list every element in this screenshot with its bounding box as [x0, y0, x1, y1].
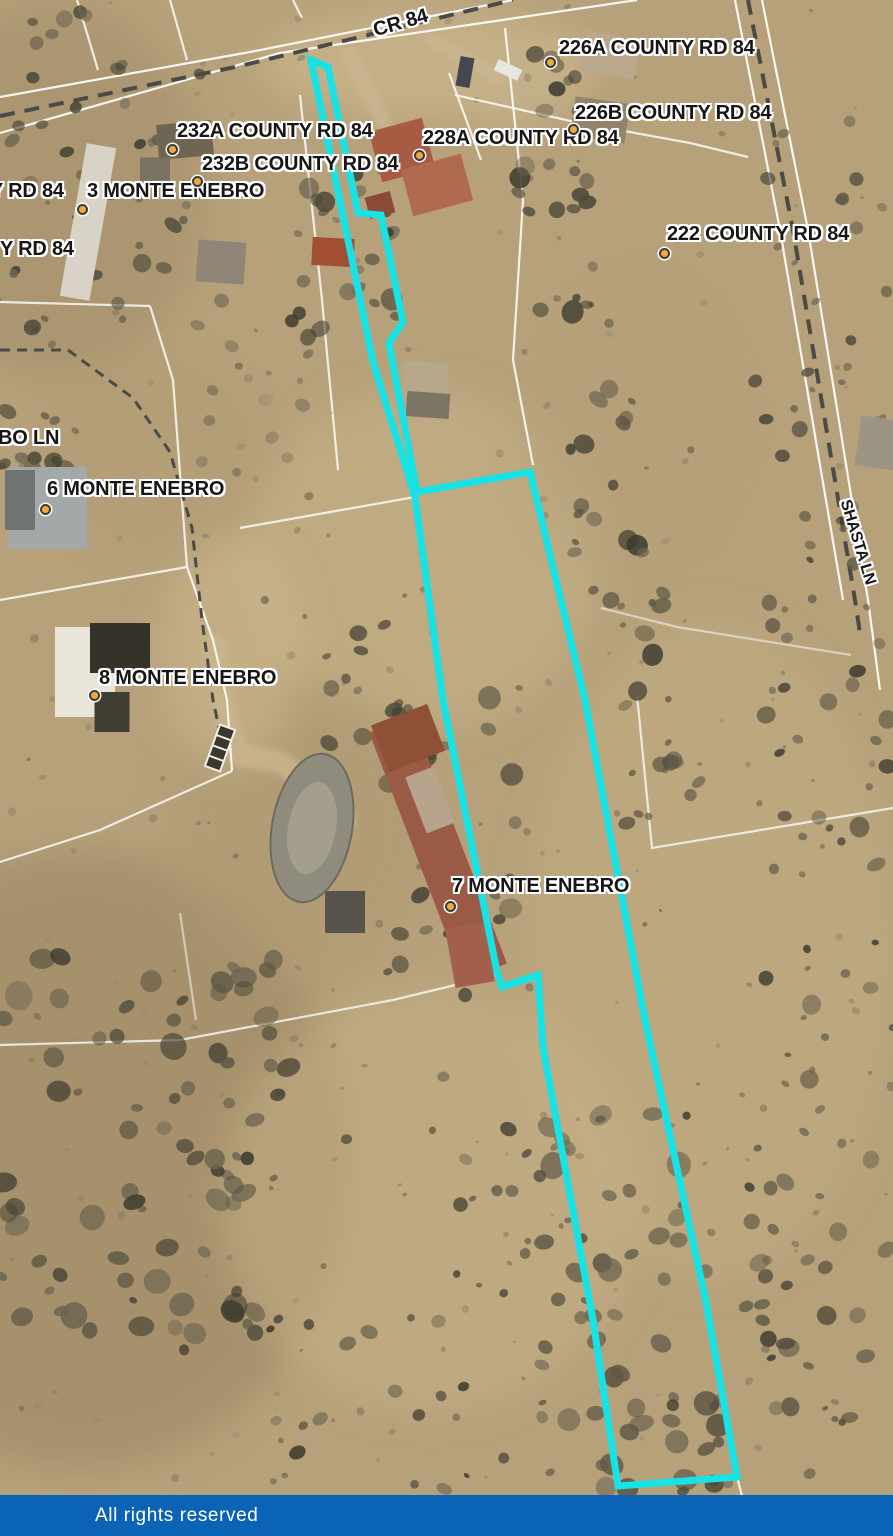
building	[196, 239, 247, 284]
address-point-6-monte	[40, 504, 51, 515]
map-canvas[interactable]	[0, 0, 893, 1536]
building	[90, 623, 150, 673]
building	[325, 891, 365, 933]
aerial-imagery	[0, 0, 893, 1536]
address-point-232b	[192, 176, 203, 187]
road-centerline-shasta-ln	[748, 0, 861, 640]
parcel-boundary-line	[170, 0, 187, 60]
building	[140, 158, 170, 183]
parcel-boundary-line	[293, 0, 302, 18]
parcel-boundary-line	[0, 567, 187, 600]
building	[5, 470, 35, 530]
address-point-228a	[414, 150, 425, 161]
building	[95, 692, 130, 732]
building	[406, 391, 451, 419]
parcel-boundary-line	[735, 0, 843, 600]
parcel-boundary-line	[762, 0, 880, 690]
address-point-8-monte	[89, 690, 100, 701]
building	[156, 120, 214, 160]
map-viewport: CR 84226A COUNTY RD 84226B COUNTY RD 842…	[0, 0, 893, 1536]
building	[570, 96, 630, 143]
address-point-3-monte	[77, 204, 88, 215]
copyright-bar: All rights reserved	[0, 1495, 893, 1536]
address-point-7-monte	[445, 901, 456, 912]
address-point-226a	[545, 57, 556, 68]
address-point-222	[659, 248, 670, 259]
address-point-232a	[167, 144, 178, 155]
copyright-text: All rights reserved	[0, 1505, 258, 1527]
address-point-226b	[568, 124, 579, 135]
building	[855, 415, 893, 470]
